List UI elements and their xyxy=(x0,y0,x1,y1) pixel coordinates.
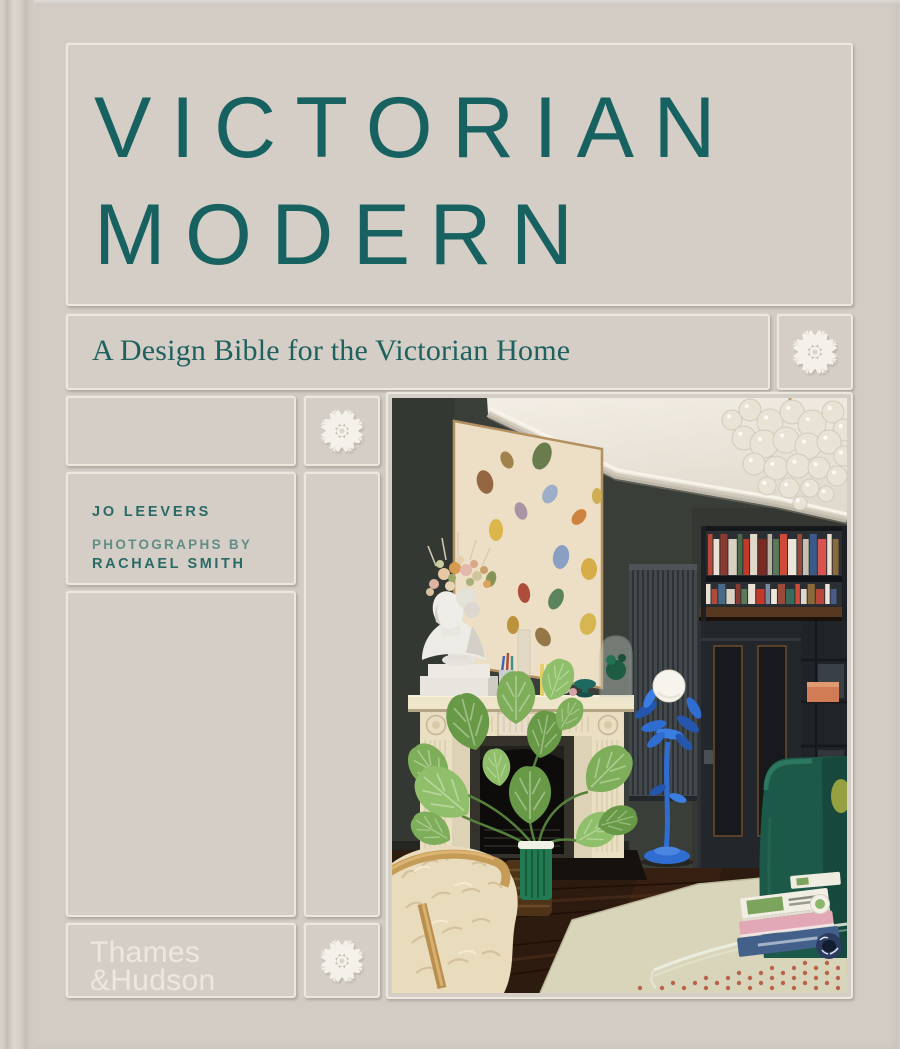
blank-tall-panel xyxy=(66,591,296,917)
pink-bowl xyxy=(569,688,577,696)
book-spine-edge xyxy=(0,0,34,1049)
plant-vase xyxy=(518,841,554,900)
bookcase xyxy=(699,526,847,622)
blank-narrow-panel xyxy=(304,472,380,917)
cover-photo-frame xyxy=(386,392,853,999)
sheepskin-armchair xyxy=(392,846,518,993)
author-name: JO LEEVERS xyxy=(92,504,294,520)
blank-panel xyxy=(66,396,296,466)
ceiling-rose-icon xyxy=(788,325,842,379)
ornament-panel-bottom xyxy=(304,923,380,998)
title-panel: VICTORIAN MODERN xyxy=(66,43,853,306)
candle-pot xyxy=(811,895,830,914)
glass-cloche xyxy=(600,636,632,696)
book-cover: VICTORIAN MODERN A Design Bible for the … xyxy=(0,0,900,1049)
publisher-line-2: &Hudson xyxy=(90,967,294,995)
publisher-logo: Thames &Hudson xyxy=(68,925,294,995)
title-line-1: VICTORIAN xyxy=(94,75,851,182)
ornament-panel-top xyxy=(777,314,853,390)
book-title: VICTORIAN MODERN xyxy=(68,45,851,289)
ceiling-rose-icon xyxy=(316,405,368,457)
book-subtitle: A Design Bible for the Victorian Home xyxy=(68,316,768,386)
photographer-name: RACHAEL SMITH xyxy=(92,554,294,574)
publisher-panel: Thames &Hudson xyxy=(66,923,296,998)
light-switch xyxy=(704,750,713,764)
photo-credit-prefix: PHOTOGRAPHS BY xyxy=(92,535,294,554)
ornament-panel-middle xyxy=(304,396,380,466)
subtitle-panel: A Design Bible for the Victorian Home xyxy=(66,314,770,390)
blue-patterned-bowl xyxy=(816,933,842,959)
ceiling-rose-icon xyxy=(316,935,368,987)
author-panel: JO LEEVERS PHOTOGRAPHS BY RACHAEL SMITH xyxy=(66,472,296,585)
title-line-2: MODERN xyxy=(94,182,851,289)
cover-photo xyxy=(392,398,847,993)
publisher-line-1: Thames xyxy=(90,939,294,967)
